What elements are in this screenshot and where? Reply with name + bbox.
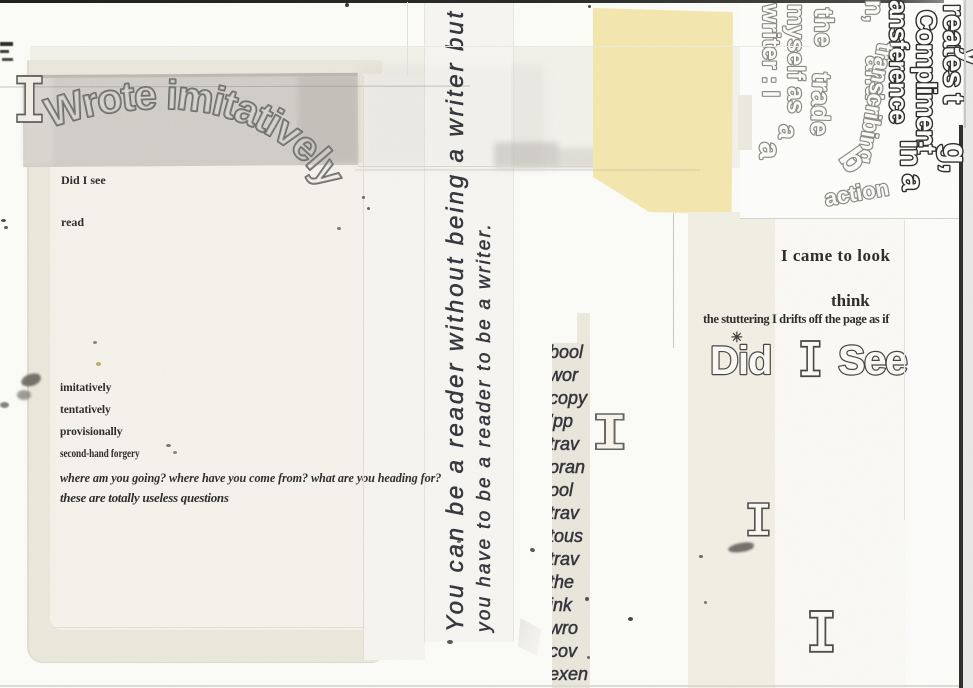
- svg-text:in: in: [894, 140, 927, 167]
- svg-text:myself as: myself as: [782, 4, 809, 113]
- svg-text:Compliment: Compliment: [911, 10, 942, 153]
- svg-text:the: the: [809, 8, 839, 47]
- svg-text:See: See: [838, 337, 907, 383]
- svg-text:✳: ✳: [731, 329, 743, 345]
- svg-text:Did: Did: [710, 339, 771, 383]
- svg-text:action: action: [823, 175, 891, 211]
- svg-text:writer : I: writer : I: [757, 3, 784, 97]
- svg-text:a: a: [896, 174, 929, 191]
- svg-text:a: a: [773, 123, 804, 141]
- svg-text:n,: n,: [860, 0, 888, 22]
- svg-text:a: a: [753, 142, 786, 159]
